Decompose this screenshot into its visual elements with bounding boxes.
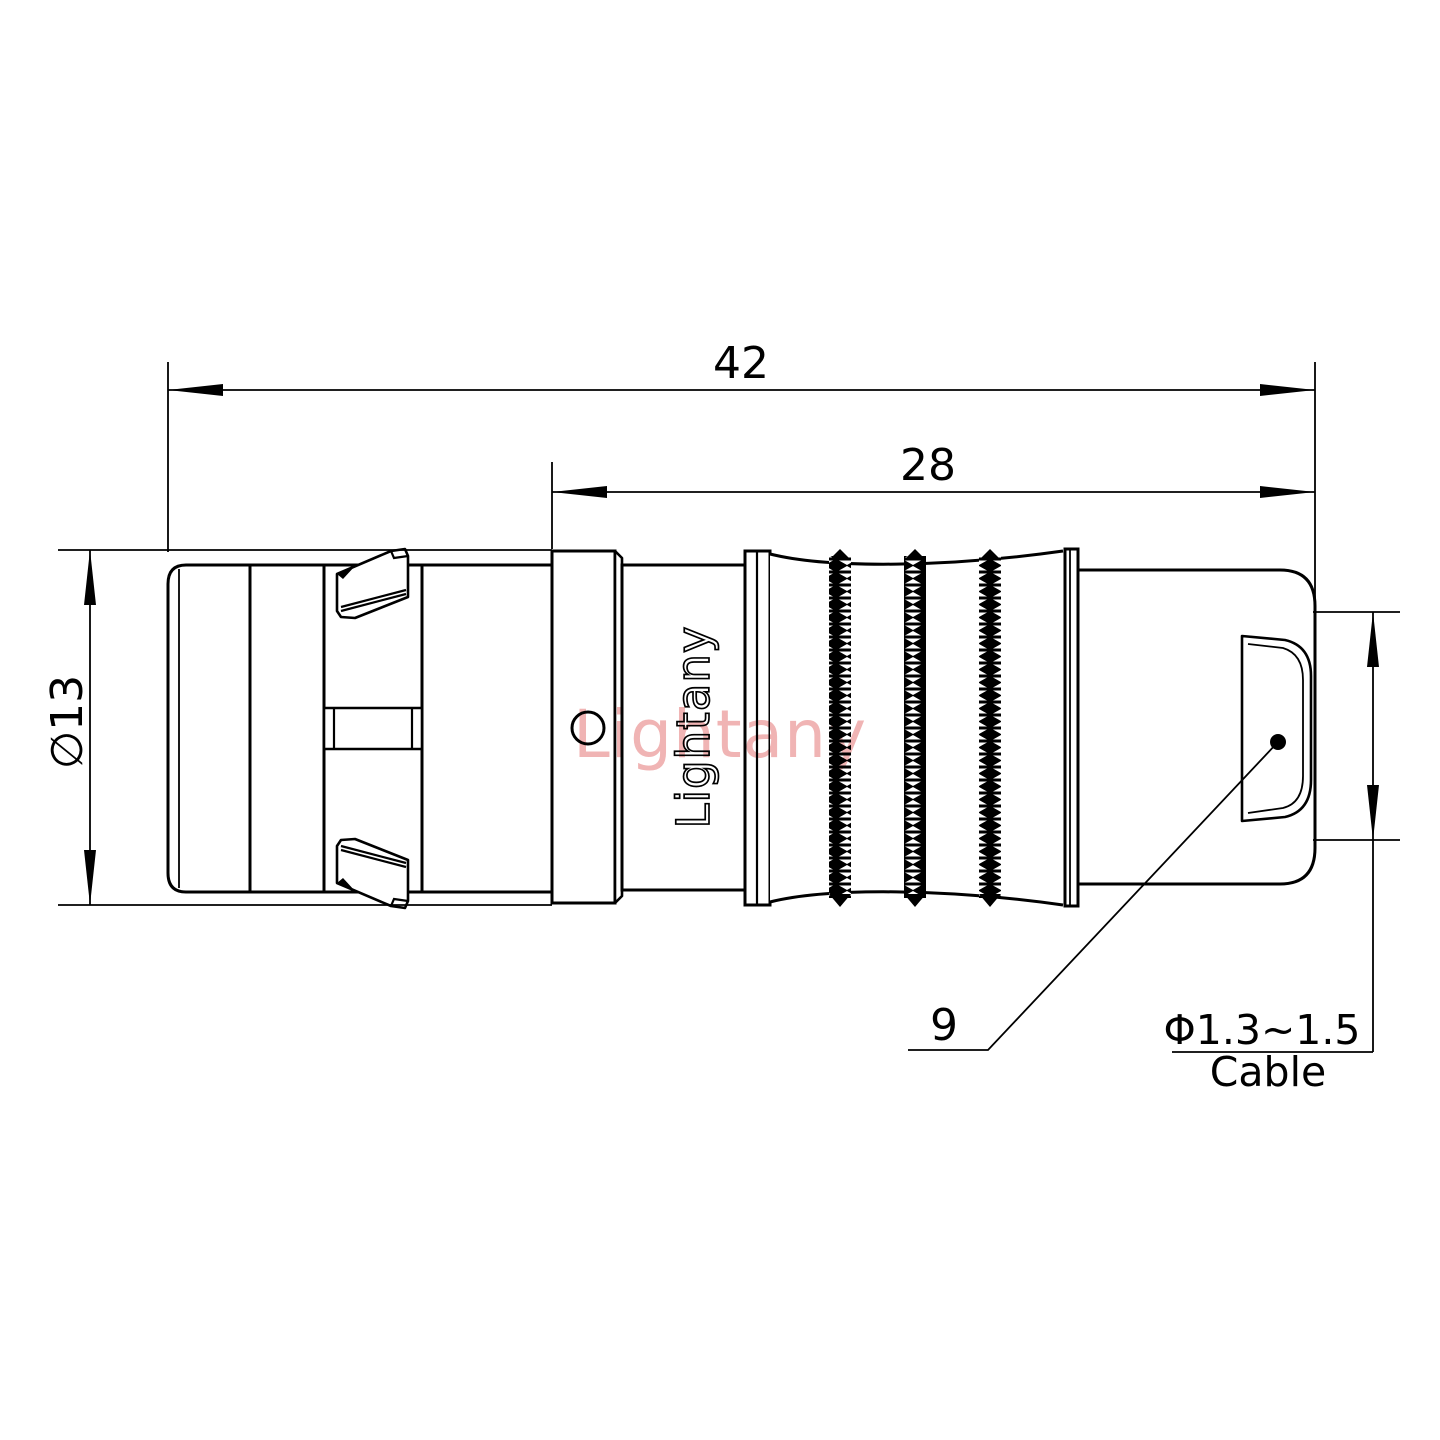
dim-diameter-value: ∅13 (42, 675, 93, 769)
technical-drawing: Lightany (0, 0, 1440, 1440)
dim-overall-value: 42 (713, 338, 769, 389)
dimension-rear-length: 28 (552, 440, 1315, 549)
watermark-text: Lightany (573, 696, 867, 773)
cable-word: Cable (1210, 1048, 1326, 1096)
cable-diameter-value: Φ1.3~1.5 (1163, 1006, 1360, 1054)
knurl-ring-2 (904, 549, 926, 907)
nut-size-value: 9 (930, 1000, 958, 1051)
latch-window (324, 708, 422, 749)
dim-rear-value: 28 (900, 440, 956, 491)
knurl-ring-3 (979, 549, 1001, 907)
rear-flange (1065, 549, 1078, 906)
cable-bushing (1242, 636, 1311, 821)
